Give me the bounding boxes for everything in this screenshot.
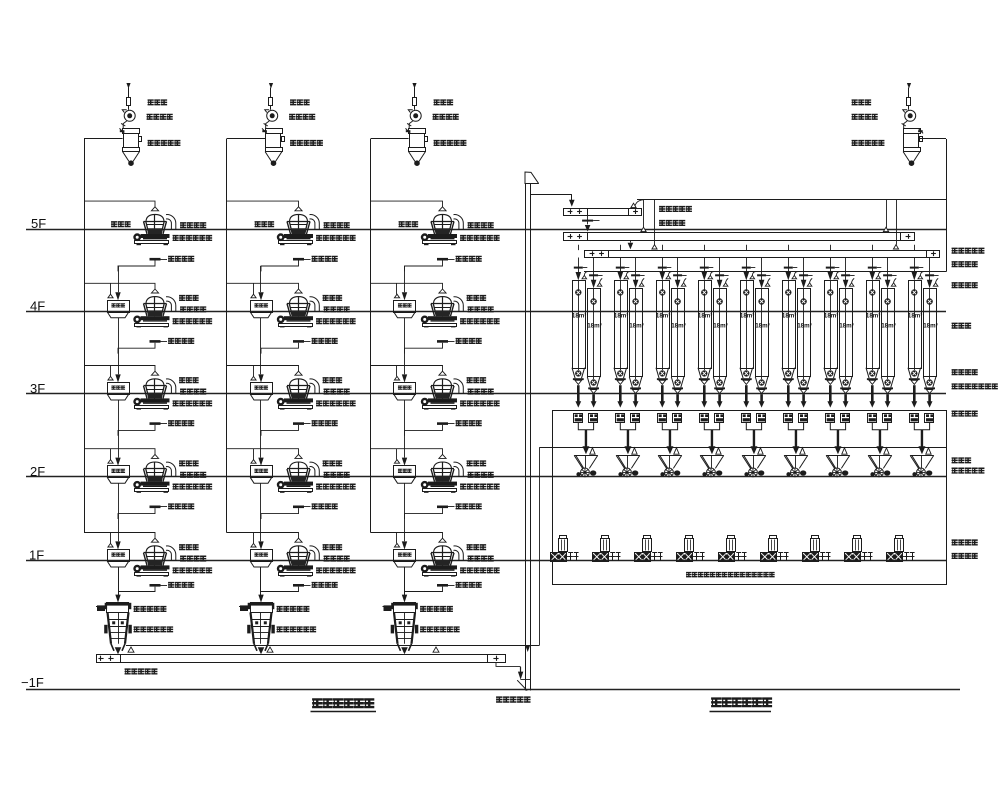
svg-text:18m³: 18m³ xyxy=(572,313,586,320)
svg-text:4F: 4F xyxy=(30,299,45,314)
svg-text:18m³: 18m³ xyxy=(797,323,811,330)
svg-text:18m³: 18m³ xyxy=(923,323,937,330)
svg-text:2F: 2F xyxy=(30,464,45,479)
svg-text:18m³: 18m³ xyxy=(782,313,796,320)
svg-text:18m³: 18m³ xyxy=(713,323,727,330)
svg-text:18m³: 18m³ xyxy=(629,323,643,330)
svg-text:18m³: 18m³ xyxy=(671,323,685,330)
svg-text:18m³: 18m³ xyxy=(755,323,769,330)
svg-text:3F: 3F xyxy=(30,381,45,396)
svg-text:18m³: 18m³ xyxy=(824,313,838,320)
svg-text:5F: 5F xyxy=(31,216,46,231)
svg-text:18m³: 18m³ xyxy=(839,323,853,330)
svg-text:1F: 1F xyxy=(29,548,44,563)
svg-text:18m³: 18m³ xyxy=(698,313,712,320)
svg-text:18m³: 18m³ xyxy=(881,323,895,330)
svg-text:−1F: −1F xyxy=(21,675,44,690)
svg-text:18m³: 18m³ xyxy=(740,313,754,320)
svg-text:18m³: 18m³ xyxy=(908,313,922,320)
svg-text:18m³: 18m³ xyxy=(587,323,601,330)
svg-text:18m³: 18m³ xyxy=(656,313,670,320)
svg-text:18m³: 18m³ xyxy=(866,313,880,320)
svg-text:18m³: 18m³ xyxy=(614,313,628,320)
